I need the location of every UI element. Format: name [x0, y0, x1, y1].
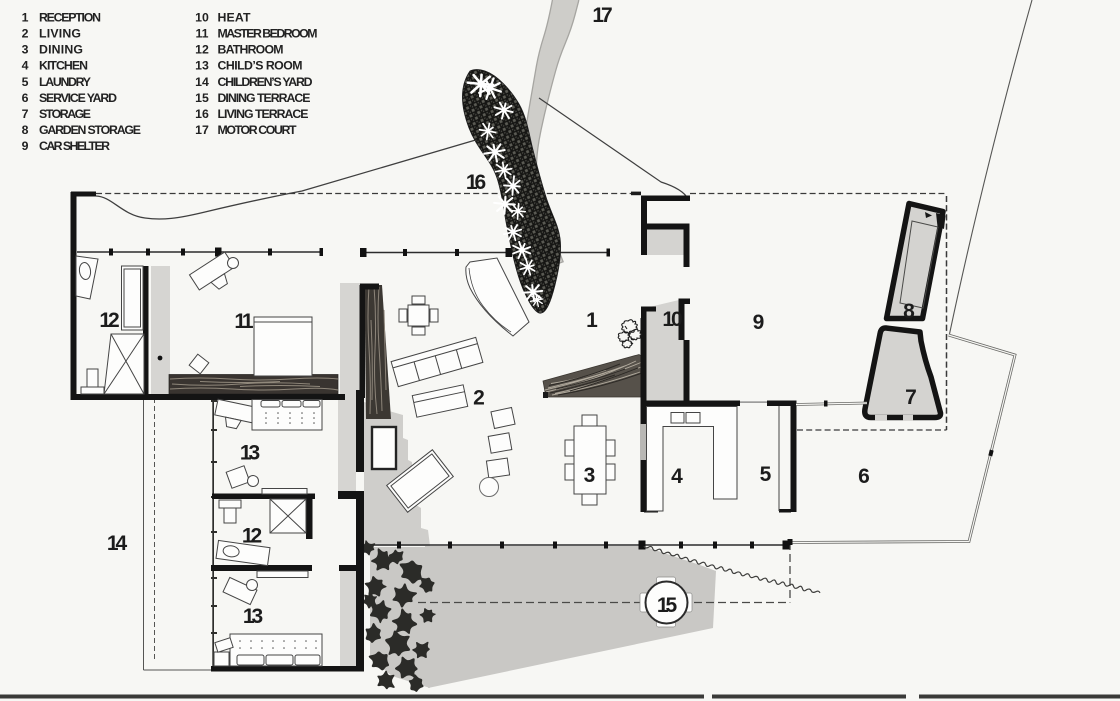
svg-text:CHILDREN’S YARD: CHILDREN’S YARD: [218, 75, 313, 89]
svg-text:9: 9: [22, 139, 29, 153]
svg-text:6: 6: [22, 91, 29, 105]
svg-text:15: 15: [195, 91, 209, 105]
svg-text:13: 13: [195, 59, 209, 73]
svg-text:STORAGE: STORAGE: [39, 107, 91, 121]
svg-text:13: 13: [243, 605, 263, 628]
svg-text:7: 7: [22, 107, 29, 121]
svg-text:MASTER BEDROOM: MASTER BEDROOM: [218, 27, 318, 41]
svg-text:KITCHEN: KITCHEN: [39, 59, 88, 73]
svg-text:SERVICE YARD: SERVICE YARD: [39, 91, 117, 105]
svg-text:2: 2: [22, 27, 29, 41]
svg-text:16: 16: [466, 171, 486, 194]
svg-text:DINING TERRACE: DINING TERRACE: [218, 91, 311, 105]
svg-text:8: 8: [22, 123, 29, 137]
svg-text:4: 4: [22, 59, 29, 73]
svg-text:LIVING: LIVING: [39, 27, 81, 41]
svg-text:7: 7: [905, 386, 917, 409]
svg-text:3: 3: [584, 464, 596, 487]
svg-text:MOTOR COURT: MOTOR COURT: [218, 123, 297, 137]
svg-text:CHILD’S ROOM: CHILD’S ROOM: [218, 59, 303, 73]
svg-text:13: 13: [240, 442, 260, 465]
svg-text:8: 8: [903, 300, 915, 323]
svg-text:CAR SHELTER: CAR SHELTER: [39, 139, 110, 153]
svg-text:2: 2: [473, 387, 485, 410]
svg-text:16: 16: [195, 107, 209, 121]
svg-text:5: 5: [760, 463, 772, 486]
svg-text:3: 3: [22, 43, 29, 57]
svg-text:17: 17: [195, 123, 209, 137]
svg-text:DINING: DINING: [39, 43, 83, 57]
svg-text:GARDEN STORAGE: GARDEN STORAGE: [39, 123, 141, 137]
svg-text:10: 10: [195, 11, 209, 25]
svg-text:1: 1: [22, 11, 29, 25]
svg-text:11: 11: [196, 27, 209, 41]
svg-text:12: 12: [242, 525, 262, 548]
svg-text:LAUNDRY: LAUNDRY: [39, 75, 91, 89]
svg-text:LIVING TERRACE: LIVING TERRACE: [218, 107, 309, 121]
svg-text:4: 4: [671, 465, 683, 488]
svg-text:10: 10: [662, 308, 682, 331]
svg-text:5: 5: [22, 75, 29, 89]
svg-text:14: 14: [195, 75, 209, 89]
svg-text:1: 1: [586, 309, 598, 332]
svg-text:RECEPTION: RECEPTION: [39, 11, 101, 25]
svg-text:9: 9: [753, 311, 765, 334]
svg-text:BATHROOM: BATHROOM: [218, 43, 284, 57]
svg-text:12: 12: [195, 43, 209, 57]
svg-text:12: 12: [99, 309, 119, 332]
svg-text:17: 17: [592, 4, 612, 27]
svg-text:6: 6: [858, 465, 870, 488]
svg-text:HEAT: HEAT: [218, 11, 251, 25]
